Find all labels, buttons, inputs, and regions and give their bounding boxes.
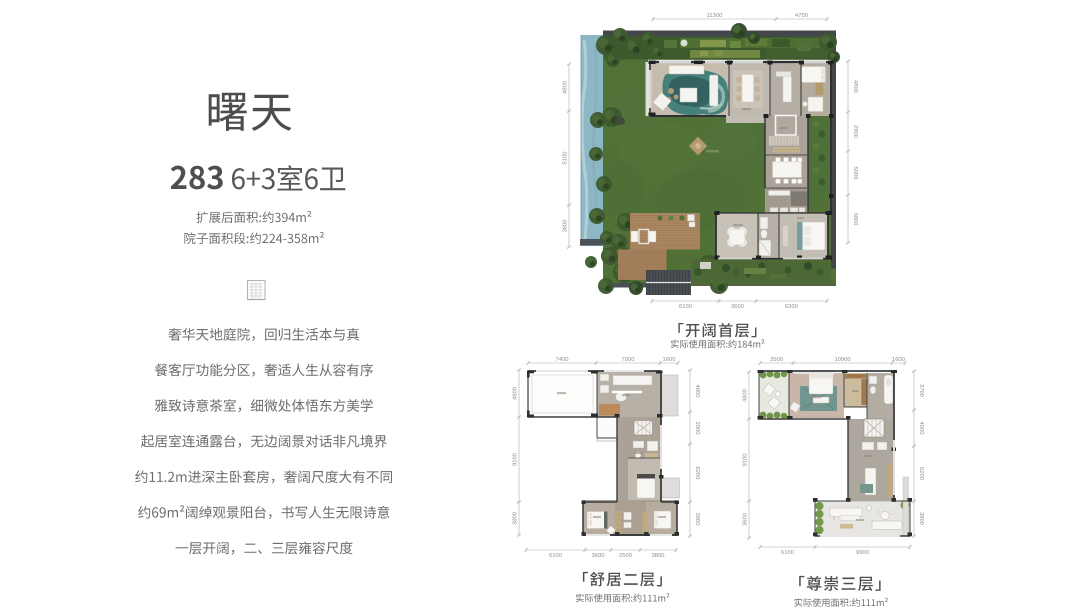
svg-text:3600: 3600 [743, 513, 749, 526]
svg-text:2900: 2900 [852, 125, 858, 138]
svg-text:6100: 6100 [679, 304, 692, 310]
svg-text:3800: 3800 [694, 513, 700, 526]
svg-text:3800: 3800 [918, 512, 924, 525]
svg-text:3800: 3800 [852, 213, 858, 226]
svg-text:6200: 6200 [694, 467, 700, 480]
svg-text:3800: 3800 [652, 553, 665, 559]
svg-text:2500: 2500 [619, 553, 632, 559]
svg-text:5100: 5100 [563, 152, 569, 165]
svg-text:3700: 3700 [918, 384, 924, 397]
svg-text:9100: 9100 [513, 453, 519, 466]
svg-text:4800: 4800 [852, 80, 858, 93]
svg-text:9900: 9900 [856, 550, 869, 556]
svg-text:3600: 3600 [563, 220, 569, 233]
svg-text:6300: 6300 [785, 304, 798, 310]
svg-text:4800: 4800 [513, 387, 519, 400]
svg-text:6100: 6100 [781, 550, 794, 556]
svg-text:6100: 6100 [549, 553, 562, 559]
svg-text:11300: 11300 [707, 13, 723, 19]
svg-text:10900: 10900 [834, 357, 850, 363]
svg-text:2900: 2900 [694, 422, 700, 435]
svg-text:3800: 3800 [513, 512, 519, 525]
svg-text:4800: 4800 [563, 81, 569, 94]
svg-text:4800: 4800 [743, 389, 749, 402]
svg-text:1600: 1600 [892, 357, 905, 363]
svg-text:3600: 3600 [592, 553, 605, 559]
svg-text:3500: 3500 [770, 357, 783, 363]
svg-text:6200: 6200 [918, 467, 924, 480]
svg-text:9100: 9100 [743, 454, 749, 467]
svg-text:7000: 7000 [622, 357, 635, 363]
svg-text:7400: 7400 [556, 357, 569, 363]
svg-text:4700: 4700 [795, 13, 808, 19]
svg-text:4000: 4000 [918, 422, 924, 435]
svg-text:3600: 3600 [731, 304, 744, 310]
svg-text:5000: 5000 [852, 167, 858, 180]
svg-text:1600: 1600 [663, 357, 676, 363]
svg-text:4800: 4800 [694, 385, 700, 398]
